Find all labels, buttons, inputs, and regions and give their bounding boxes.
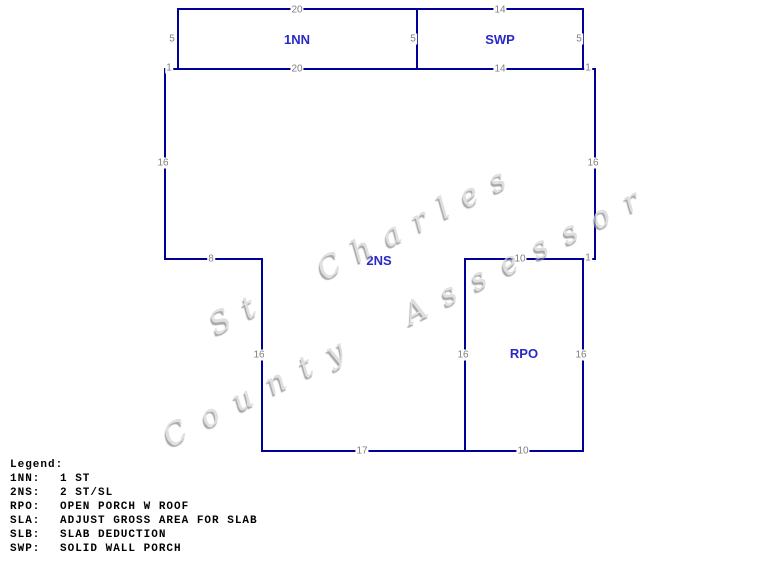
legend-description: OPEN PORCH W ROOF (60, 500, 189, 514)
area-label-1nn: 1NN (284, 33, 310, 47)
legend-code: RPO: (10, 500, 60, 514)
legend-code: SWP: (10, 542, 60, 556)
dimension-main-right-height: 16 (586, 158, 599, 169)
dimension-main-left-height: 16 (156, 158, 169, 169)
dimension-step-width: 8 (207, 254, 215, 265)
legend-entry: SWP: SOLID WALL PORCH (10, 542, 258, 556)
porch-1nn-swp-outline (178, 9, 583, 69)
dimension-1nn-width-bottom: 20 (290, 64, 303, 75)
dimension-swp-width-bottom: 14 (493, 64, 506, 75)
legend-description: ADJUST GROSS AREA FOR SLAB (60, 514, 258, 528)
dimension-tick-rpo-top-right: 1 (584, 253, 592, 264)
legend-entry: RPO: OPEN PORCH W ROOF (10, 500, 258, 514)
dimension-rpo-right-height: 16 (574, 350, 587, 361)
dimension-lower-left-height: 16 (252, 350, 265, 361)
legend-description: SLAB DEDUCTION (60, 528, 166, 542)
property-sketch-page: 1NN SWP 2NS RPO 20 14 5 5 5 1 20 14 1 16… (0, 0, 762, 573)
legend-code: 1NN: (10, 472, 60, 486)
legend-description: SOLID WALL PORCH (60, 542, 182, 556)
legend: Legend: 1NN: 1 ST 2NS: 2 ST/SL RPO: OPEN… (10, 458, 258, 556)
dimension-tick-top-right: 1 (584, 63, 592, 74)
legend-description: 2 ST/SL (60, 486, 113, 500)
dimension-swp-height-right: 5 (575, 34, 583, 45)
legend-code: SLA: (10, 514, 60, 528)
dimension-1nn-height-right: 5 (409, 34, 417, 45)
legend-code: 2NS: (10, 486, 60, 500)
dimension-2ns-width-bottom: 17 (355, 446, 368, 457)
dimension-swp-width-top: 14 (493, 5, 506, 16)
legend-entry: SLB: SLAB DEDUCTION (10, 528, 258, 542)
legend-entry: 1NN: 1 ST (10, 472, 258, 486)
legend-title: Legend: (10, 458, 258, 472)
dimension-rpo-width-bottom: 10 (516, 446, 529, 457)
dimension-1nn-height-left: 5 (168, 34, 176, 45)
legend-entry: SLA: ADJUST GROSS AREA FOR SLAB (10, 514, 258, 528)
dimension-rpo-width-top: 10 (513, 254, 526, 265)
dimension-interior-wall-height: 16 (456, 350, 469, 361)
legend-description: 1 ST (60, 472, 90, 486)
area-label-rpo: RPO (510, 347, 538, 361)
dimension-tick-top-left: 1 (165, 63, 173, 74)
area-label-2ns: 2NS (366, 254, 391, 268)
area-label-swp: SWP (485, 33, 515, 47)
legend-code: SLB: (10, 528, 60, 542)
legend-entry: 2NS: 2 ST/SL (10, 486, 258, 500)
dimension-1nn-width-top: 20 (290, 5, 303, 16)
